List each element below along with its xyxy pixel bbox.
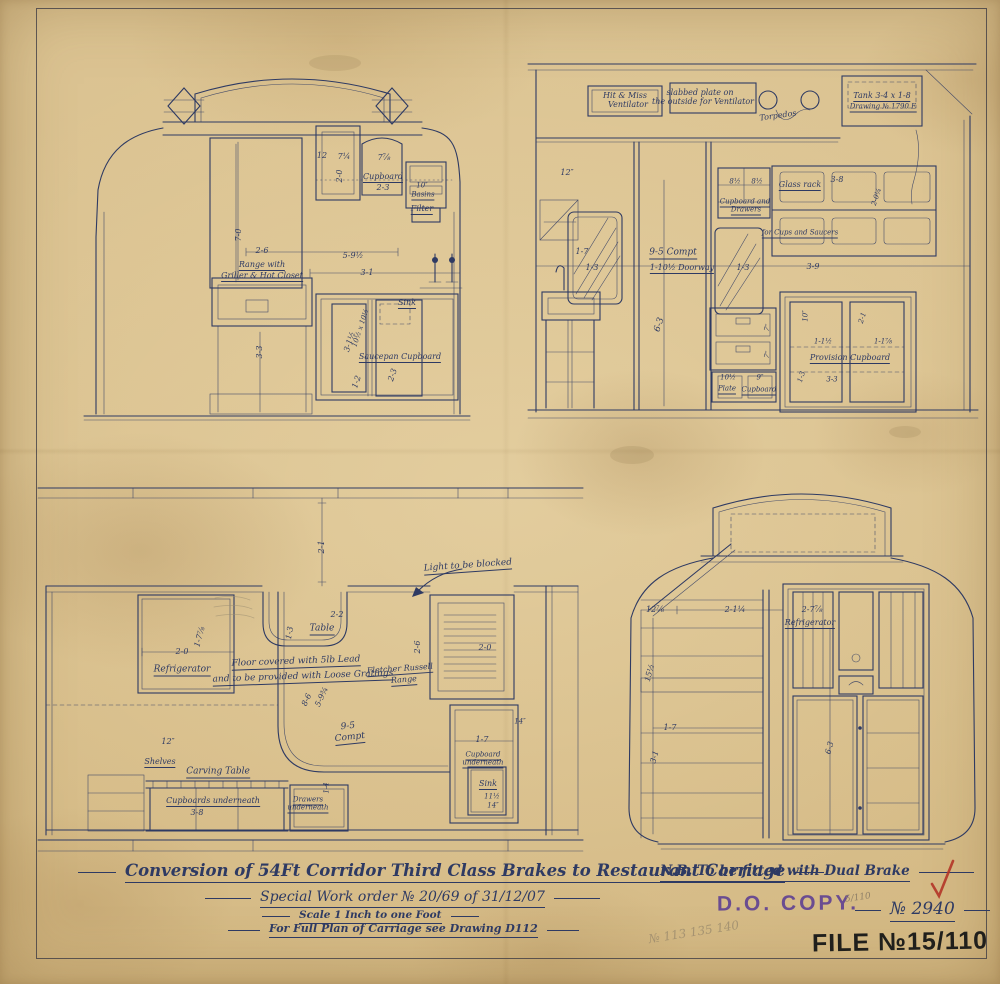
red-checkmark — [932, 861, 953, 896]
blueprint-sheet: 127¼7⅞2-0Cupboard2-310″BasinsFilter7-02-… — [0, 0, 1000, 984]
marks-overlay — [0, 0, 1000, 984]
